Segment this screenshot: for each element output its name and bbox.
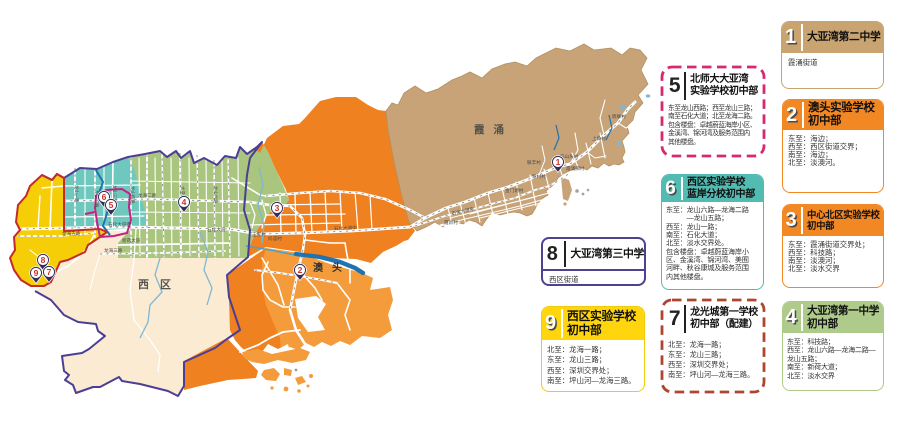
svg-text:9: 9	[34, 268, 39, 278]
svg-text:龙海二路: 龙海二路	[138, 192, 157, 199]
svg-text:龙山一路: 龙山一路	[73, 185, 80, 203]
svg-text:新村村: 新村村	[532, 173, 546, 180]
svg-text:联丰村: 联丰村	[527, 159, 541, 166]
svg-text:3: 3	[275, 203, 280, 213]
svg-text:澳头: 澳头	[313, 261, 351, 274]
svg-text:西区: 西区	[138, 278, 182, 291]
svg-text:龙山四路: 龙山四路	[129, 186, 136, 204]
svg-text:新荷大道: 新荷大道	[122, 237, 141, 244]
svg-text:晓联村: 晓联村	[612, 113, 626, 120]
svg-text:金门塘村: 金门塘村	[505, 187, 524, 194]
svg-text:5: 5	[109, 200, 114, 210]
svg-text:1: 1	[556, 157, 561, 167]
svg-text:龙山六路: 龙山六路	[212, 186, 219, 204]
svg-text:龙海三路: 龙海三路	[104, 247, 123, 254]
svg-text:妈庙村: 妈庙村	[268, 235, 282, 242]
svg-text:4: 4	[182, 197, 187, 207]
svg-text:上角村: 上角村	[592, 135, 606, 142]
svg-text:7: 7	[47, 267, 52, 277]
svg-text:王家村: 王家村	[252, 231, 266, 237]
svg-text:霞涌旧村: 霞涌旧村	[566, 165, 585, 172]
svg-text:龙海五路: 龙海五路	[62, 230, 81, 237]
svg-text:石化大道西: 石化大道西	[108, 221, 131, 228]
svg-text:霞涌: 霞涌	[474, 123, 513, 136]
svg-text:8: 8	[41, 255, 46, 265]
svg-text:石化大道: 石化大道	[207, 226, 226, 233]
svg-text:霞新村: 霞新村	[444, 219, 458, 226]
svg-text:2: 2	[298, 265, 303, 275]
